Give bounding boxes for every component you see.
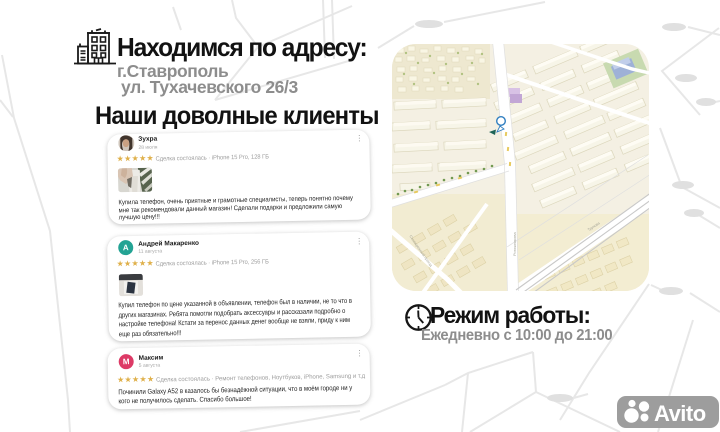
svg-text:Avito: Avito	[654, 401, 706, 426]
